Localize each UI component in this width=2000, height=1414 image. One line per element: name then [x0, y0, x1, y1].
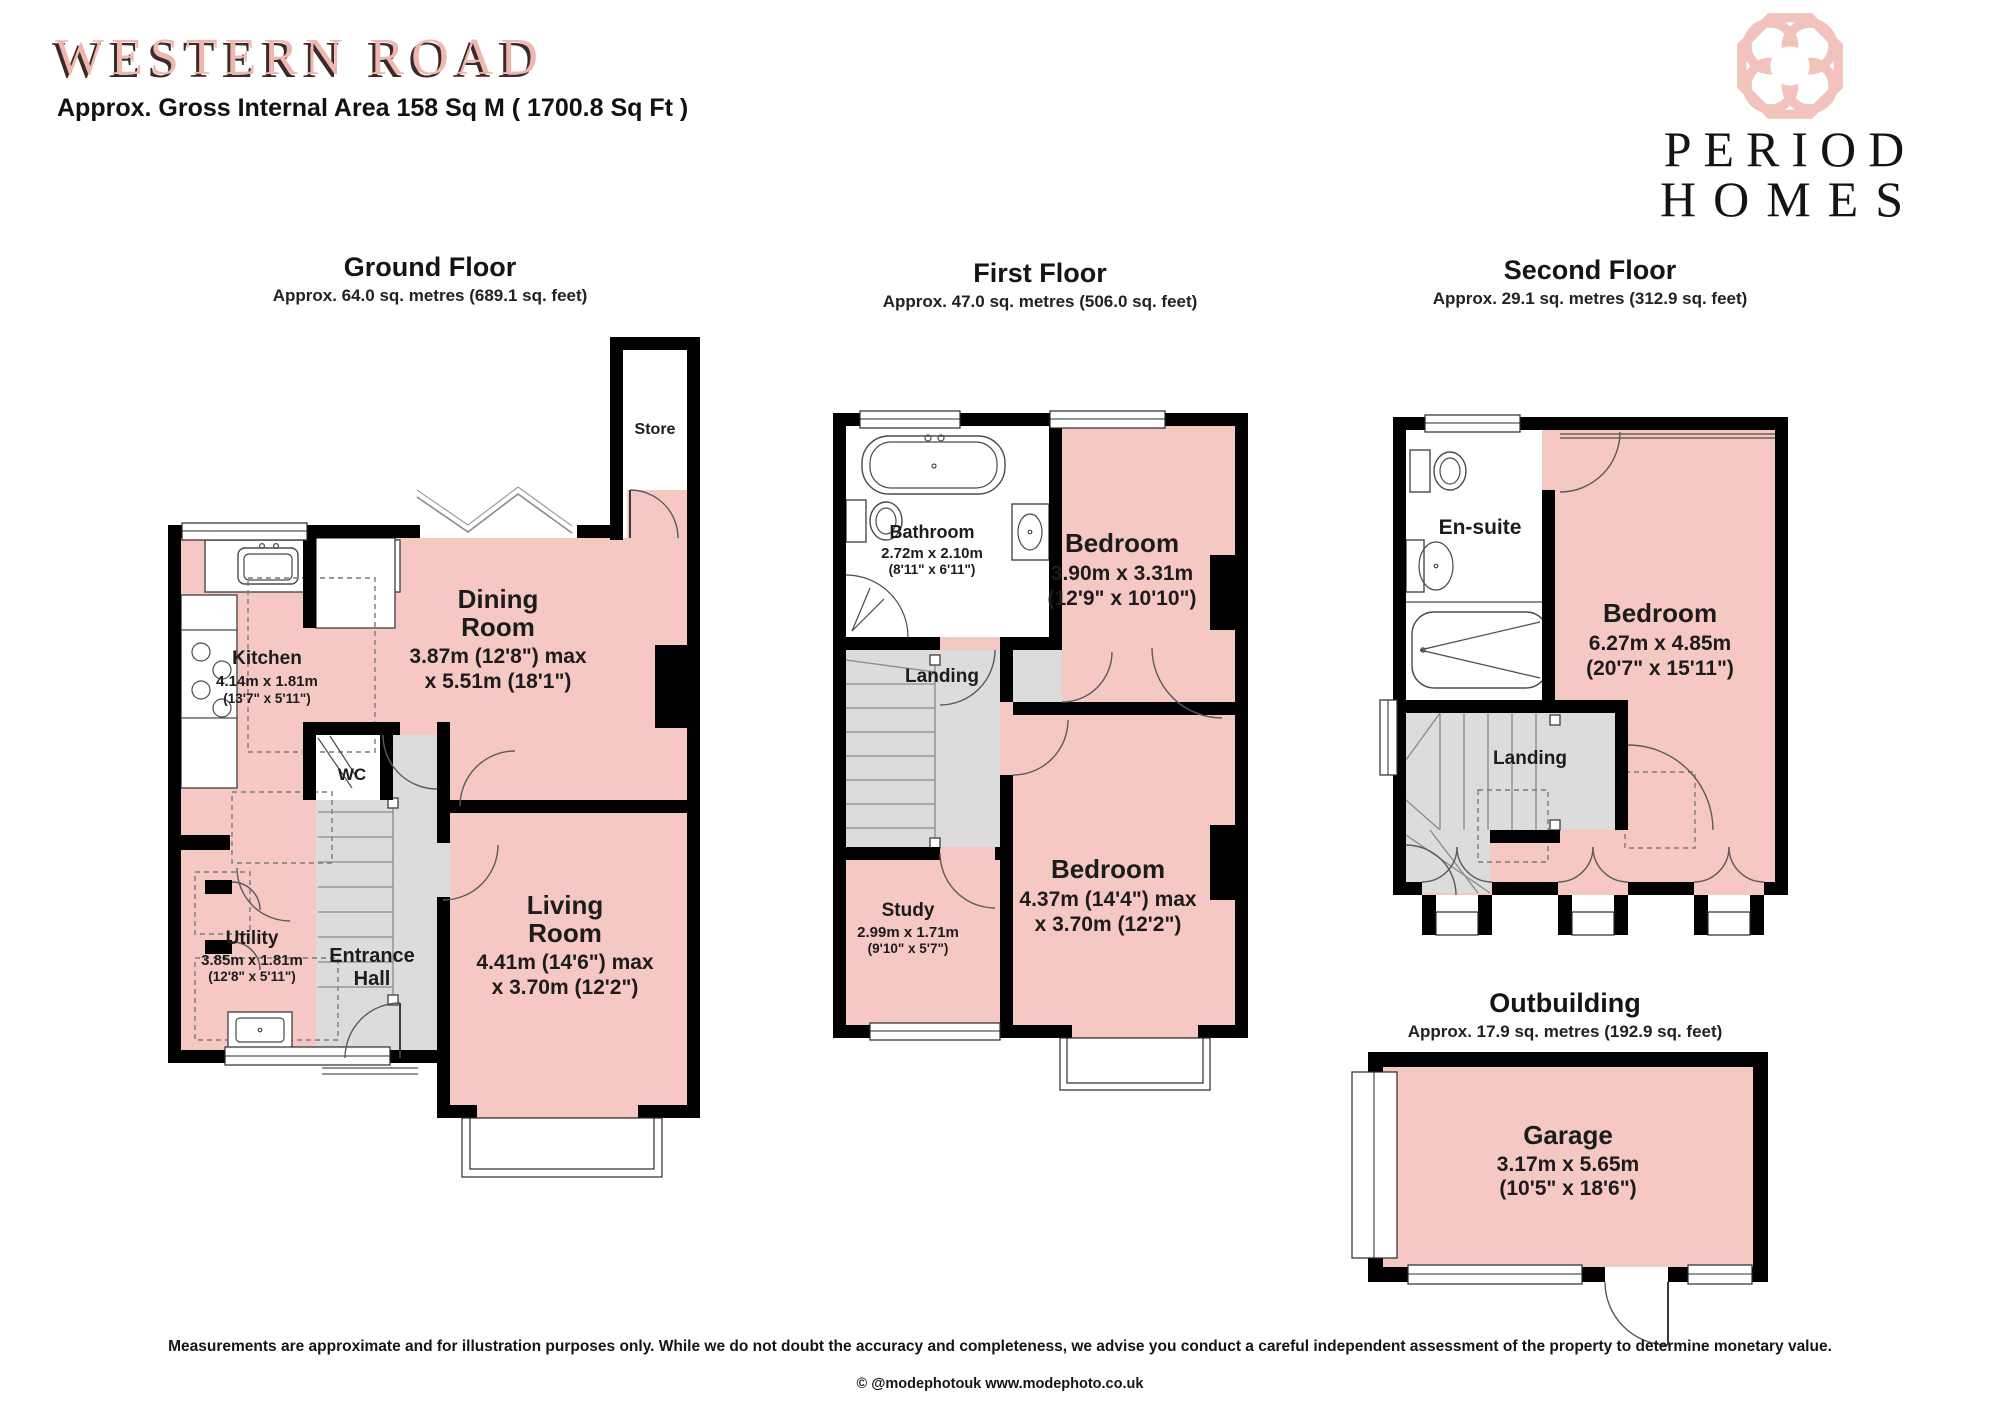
bay-window	[462, 1118, 662, 1177]
utility-dims-ft: (12'8" x 5'11")	[208, 969, 296, 984]
kitchen-label: Kitchen	[232, 648, 302, 669]
brand-name-line1: PERIOD	[1630, 124, 1950, 174]
dining-dims-2: x 5.51m (18'1")	[425, 670, 572, 693]
outbuilding-heading: Outbuilding Approx. 17.9 sq. metres (192…	[1330, 988, 1800, 1042]
kitchen-cupboard	[316, 538, 395, 628]
store-label: Store	[635, 421, 676, 438]
ground-floor-title: Ground Floor	[130, 252, 730, 283]
ground-floor-plan: Store Kitchen 4.14m x 1.81m (13'7" x 5'1…	[130, 320, 750, 1190]
ff-bedroom1-dims-2: (12'9" x 10'10")	[1048, 587, 1197, 610]
first-floor-plan: Bathroom 2.72m x 2.10m (8'11" x 6'11") B…	[800, 330, 1280, 1120]
living-dims-1: 4.41m (14'6") max	[476, 951, 654, 974]
sf-bedroom-dims-1: 6.27m x 4.85m	[1589, 632, 1731, 655]
ff-bedroom2-label: Bedroom	[1051, 854, 1165, 884]
copyright-text: © @modephotouk www.modephoto.co.uk	[0, 1376, 2000, 1392]
ground-floor-heading: Ground Floor Approx. 64.0 sq. metres (68…	[130, 252, 730, 306]
kitchen-dims-ft: (13'7" x 5'11")	[223, 691, 311, 706]
garage-windows	[1408, 1265, 1752, 1284]
entrance-hall-label-1: Entrance	[329, 945, 415, 967]
bathroom-dims-ft: (8'11" x 6'11")	[889, 562, 976, 577]
living-dims-2: x 3.70m (12'2")	[492, 976, 639, 999]
floorplan-page: WESTERN ROAD Approx. Gross Internal Area…	[0, 0, 2000, 1414]
ground-floor-area: Approx. 64.0 sq. metres (689.1 sq. feet)	[130, 286, 730, 306]
outbuilding-plan: Garage 3.17m x 5.65m (10'5" x 18'6")	[1330, 1040, 1810, 1370]
study-dims-ft: (9'10" x 5'7")	[868, 941, 949, 956]
ff-landing-label: Landing	[905, 666, 979, 687]
utility-dims-m: 3.85m x 1.81m	[201, 952, 303, 969]
brand-name-line2: HOMES	[1630, 174, 1950, 224]
sf-bath-icon	[1412, 612, 1548, 688]
agency-brand: PERIOD HOMES	[1630, 10, 1950, 224]
garage-dims-ft: (10'5" x 18'6")	[1499, 1177, 1636, 1200]
living-label-1: Living	[527, 890, 604, 920]
gross-internal-area: Approx. Gross Internal Area 158 Sq M ( 1…	[57, 94, 688, 123]
ff-bedroom2-dims-2: x 3.70m (12'2")	[1035, 913, 1182, 936]
sf-landing-label: Landing	[1493, 748, 1567, 769]
disclaimer-text: Measurements are approximate and for ill…	[0, 1338, 2000, 1356]
first-floor-title: First Floor	[790, 258, 1290, 289]
sf-landing-floor	[1406, 713, 1628, 830]
open-boundary-zigzag	[417, 487, 572, 533]
outbuilding-title: Outbuilding	[1330, 988, 1800, 1019]
dining-label-2: Room	[461, 612, 535, 642]
ff-bay-window	[1060, 1038, 1210, 1090]
bath-icon	[862, 435, 1005, 494]
period-homes-logo-icon	[1731, 10, 1849, 122]
garage-door	[1352, 1072, 1397, 1258]
second-floor-plan: En-suite Bedroom 6.27m x 4.85m (20'7" x …	[1360, 330, 1810, 960]
sf-bedroom-label: Bedroom	[1603, 598, 1717, 628]
dining-dims-1: 3.87m (12'8") max	[409, 645, 587, 668]
ensuite-label: En-suite	[1439, 516, 1522, 539]
ff-bedroom2-dims-1: 4.37m (14'4") max	[1019, 888, 1197, 911]
first-floor-area: Approx. 47.0 sq. metres (506.0 sq. feet)	[790, 292, 1290, 312]
living-label-2: Room	[528, 918, 602, 948]
sf-bedroom-dims-2: (20'7" x 15'11")	[1586, 657, 1734, 680]
second-floor-heading: Second Floor Approx. 29.1 sq. metres (31…	[1340, 255, 1840, 309]
garage-side-door	[1605, 1282, 1668, 1345]
bathroom-dims-m: 2.72m x 2.10m	[881, 545, 983, 562]
basin-icon	[1012, 504, 1049, 560]
garage-label: Garage	[1523, 1120, 1613, 1150]
store-room	[623, 350, 687, 490]
entrance-hall-label-2: Hall	[354, 968, 391, 990]
wc-label: WC	[338, 765, 366, 784]
utility-sink-icon	[228, 1012, 292, 1048]
study-label: Study	[882, 900, 935, 921]
ff-bedroom1-dims-1: 3.90m x 3.31m	[1051, 562, 1193, 585]
first-floor-heading: First Floor Approx. 47.0 sq. metres (506…	[790, 258, 1290, 312]
outbuilding-area: Approx. 17.9 sq. metres (192.9 sq. feet)	[1330, 1022, 1800, 1042]
study-dims-m: 2.99m x 1.71m	[857, 924, 959, 941]
page-title: WESTERN ROAD	[55, 28, 545, 87]
bathroom-label: Bathroom	[890, 522, 975, 542]
second-floor-area: Approx. 29.1 sq. metres (312.9 sq. feet)	[1340, 289, 1840, 309]
ff-bedroom1-label: Bedroom	[1065, 528, 1179, 558]
second-floor-title: Second Floor	[1340, 255, 1840, 286]
dining-label-1: Dining	[458, 584, 539, 614]
garage-dims-m: 3.17m x 5.65m	[1497, 1153, 1639, 1176]
kitchen-dims-m: 4.14m x 1.81m	[216, 673, 318, 690]
utility-label: Utility	[226, 928, 279, 949]
